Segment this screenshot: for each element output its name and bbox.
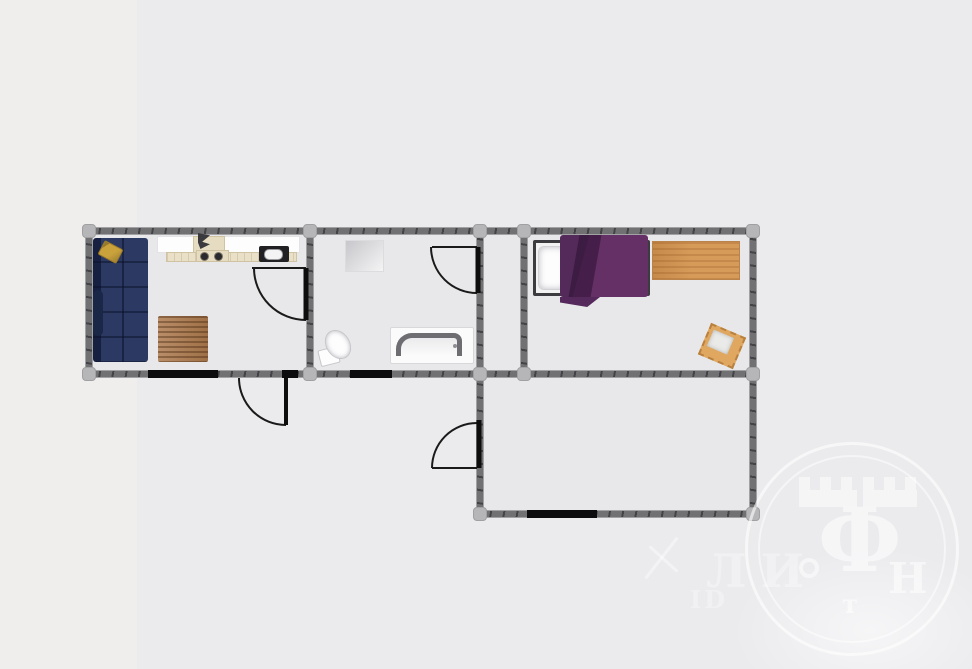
door-lower-room — [432, 420, 479, 468]
door-symbols — [0, 0, 972, 669]
floor-plan-screenshot: Ф Н т ЛИ ID — [0, 0, 972, 669]
door-living-to-bath — [252, 268, 306, 320]
door-living-exterior — [239, 378, 286, 425]
door-bathroom — [431, 247, 478, 293]
